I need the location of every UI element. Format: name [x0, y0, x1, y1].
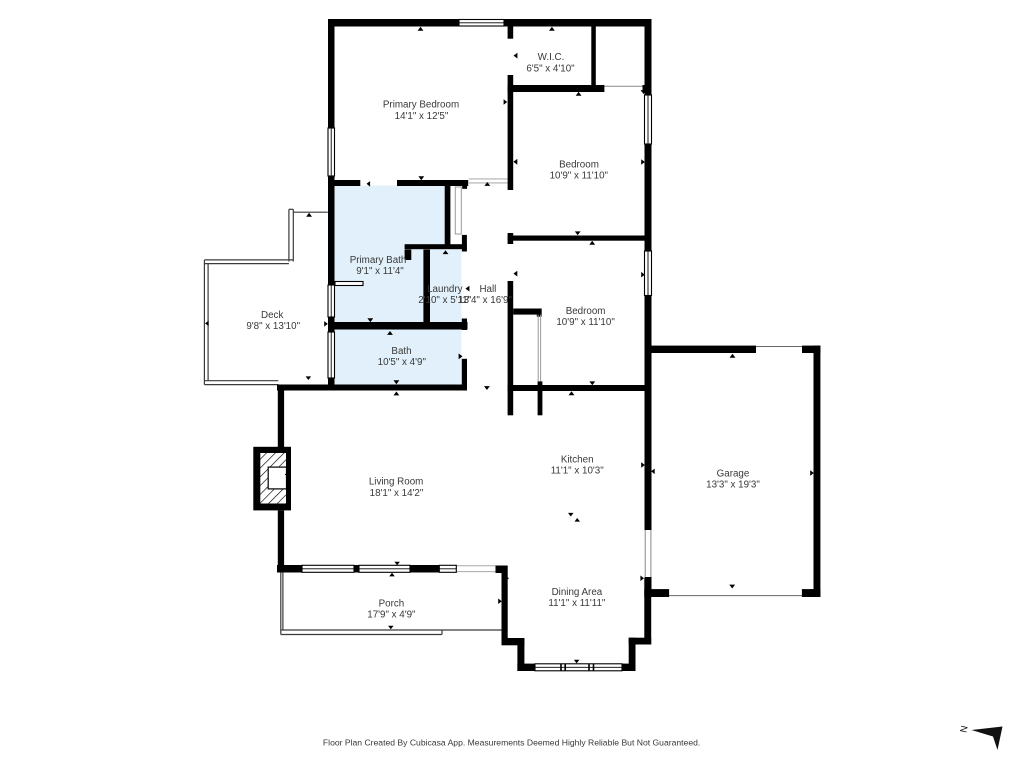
svg-text:9'1" x 11'4": 9'1" x 11'4"	[356, 266, 404, 277]
svg-text:Primary Bedroom: Primary Bedroom	[383, 100, 459, 111]
svg-text:Bedroom: Bedroom	[566, 306, 606, 317]
svg-text:Porch: Porch	[379, 599, 405, 610]
svg-text:Living Room: Living Room	[369, 477, 423, 488]
svg-text:13'4" x 16'9": 13'4" x 16'9"	[458, 295, 512, 306]
svg-text:14'1" x 12'5": 14'1" x 12'5"	[395, 111, 449, 122]
svg-text:11'1" x 11'11": 11'1" x 11'11"	[548, 598, 606, 609]
svg-text:9'8" x 13'10": 9'8" x 13'10"	[246, 321, 300, 332]
svg-text:W.I.C.: W.I.C.	[538, 52, 565, 63]
svg-text:Bath: Bath	[391, 346, 411, 357]
svg-text:6'5" x 4'10": 6'5" x 4'10"	[526, 64, 575, 75]
svg-text:17'9" x 4'9": 17'9" x 4'9"	[367, 610, 416, 621]
svg-text:10'9" x 11'10": 10'9" x 11'10"	[556, 317, 615, 328]
svg-text:Garage: Garage	[717, 469, 750, 480]
svg-text:Hall: Hall	[479, 284, 496, 295]
svg-text:10'9" x 11'10": 10'9" x 11'10"	[550, 171, 609, 182]
svg-text:Bedroom: Bedroom	[559, 159, 599, 170]
svg-text:Deck: Deck	[261, 310, 283, 321]
svg-text:Dining Area: Dining Area	[552, 587, 603, 598]
svg-text:Floor Plan Created By Cubicasa: Floor Plan Created By Cubicasa App. Meas…	[323, 738, 700, 748]
svg-text:Kitchen: Kitchen	[561, 455, 594, 466]
svg-text:10'5" x 4'9": 10'5" x 4'9"	[378, 357, 427, 368]
svg-text:11'1" x 10'3": 11'1" x 10'3"	[551, 466, 605, 477]
svg-text:Primary Bath: Primary Bath	[350, 255, 407, 266]
svg-text:Laundry: Laundry	[427, 284, 463, 295]
svg-text:18'1" x 14'2": 18'1" x 14'2"	[370, 488, 424, 499]
svg-text:13'3" x 19'3": 13'3" x 19'3"	[706, 480, 760, 491]
